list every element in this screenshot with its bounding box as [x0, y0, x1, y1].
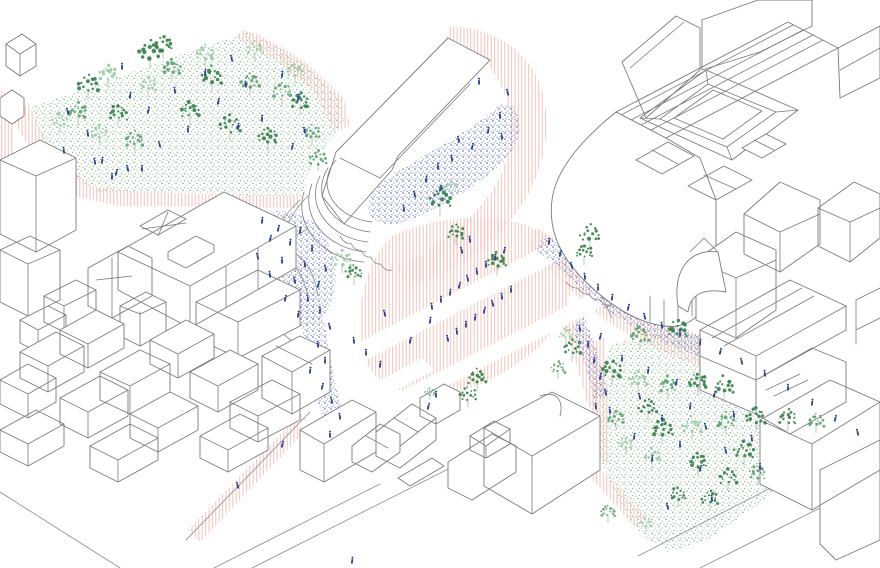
person-figure: [587, 341, 589, 348]
person-figure: [597, 284, 599, 291]
person-figure: [499, 112, 501, 119]
person-figure: [365, 349, 367, 356]
person-figure: [621, 355, 623, 362]
person-figure: [440, 296, 442, 303]
person-figure: [485, 261, 487, 268]
person-figure: [759, 463, 761, 470]
axonometric-drawing: [0, 0, 880, 568]
tree: [600, 505, 616, 523]
person-figure: [319, 307, 321, 314]
person-figure: [351, 557, 354, 564]
person-figure: [141, 165, 143, 172]
person-figure: [329, 431, 331, 438]
street-bottom-left: [0, 492, 120, 568]
person-figure: [352, 337, 355, 344]
tree: [344, 264, 362, 285]
person-figure: [465, 321, 467, 328]
person-figure: [787, 384, 789, 391]
person-figure: [311, 245, 313, 252]
person-figure: [324, 357, 326, 364]
person-figure: [281, 257, 283, 264]
park-top-left: [30, 32, 344, 196]
person-figure: [261, 115, 263, 122]
street-bottom-2: [252, 458, 470, 568]
person-figure: [679, 441, 681, 448]
person-figure: [437, 163, 439, 170]
person-figure: [328, 323, 332, 330]
person-figure: [679, 330, 681, 337]
person-figure: [661, 415, 663, 422]
person-figure: [510, 286, 512, 293]
person-figure: [121, 63, 123, 70]
person-figure: [478, 78, 480, 85]
person-figure: [187, 126, 189, 133]
person-figure: [435, 391, 437, 398]
tree: [551, 360, 567, 379]
person-figure: [111, 173, 113, 180]
axonometric-illustration: [0, 0, 880, 568]
